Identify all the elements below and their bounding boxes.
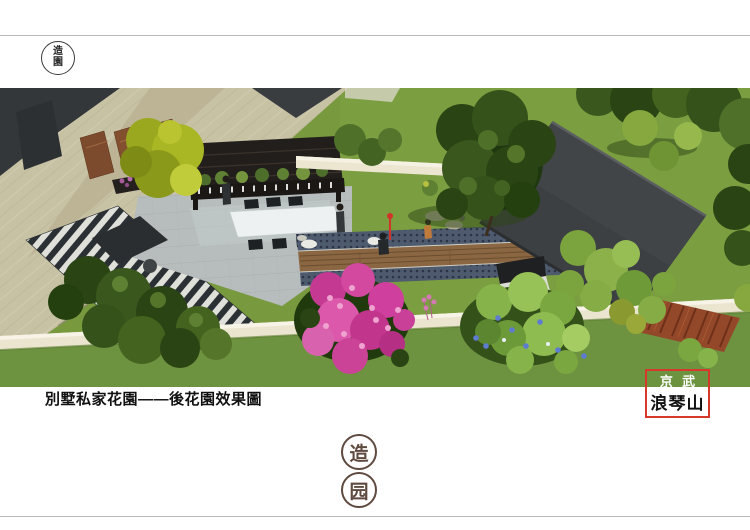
top-rule [0, 35, 750, 36]
footer-seal-bottom-char: 园 [349, 477, 368, 504]
garden-render-image [0, 88, 750, 387]
brand-line2: 浪琴山 [651, 389, 705, 414]
caption-text: 別墅私家花園——後花園效果圖 [45, 388, 262, 409]
footer-seal-bottom: 园 [341, 472, 377, 508]
footer-seal-top: 造 [341, 434, 377, 470]
bottom-rule [0, 516, 750, 517]
footer-seal-top-char: 造 [349, 439, 368, 466]
brand-line1: 京 武 [657, 372, 698, 389]
corner-seal-bottom-char: 園 [53, 58, 63, 69]
corner-seal: 造 園 [41, 41, 75, 75]
brand-box: 京 武 浪琴山 [645, 369, 710, 418]
